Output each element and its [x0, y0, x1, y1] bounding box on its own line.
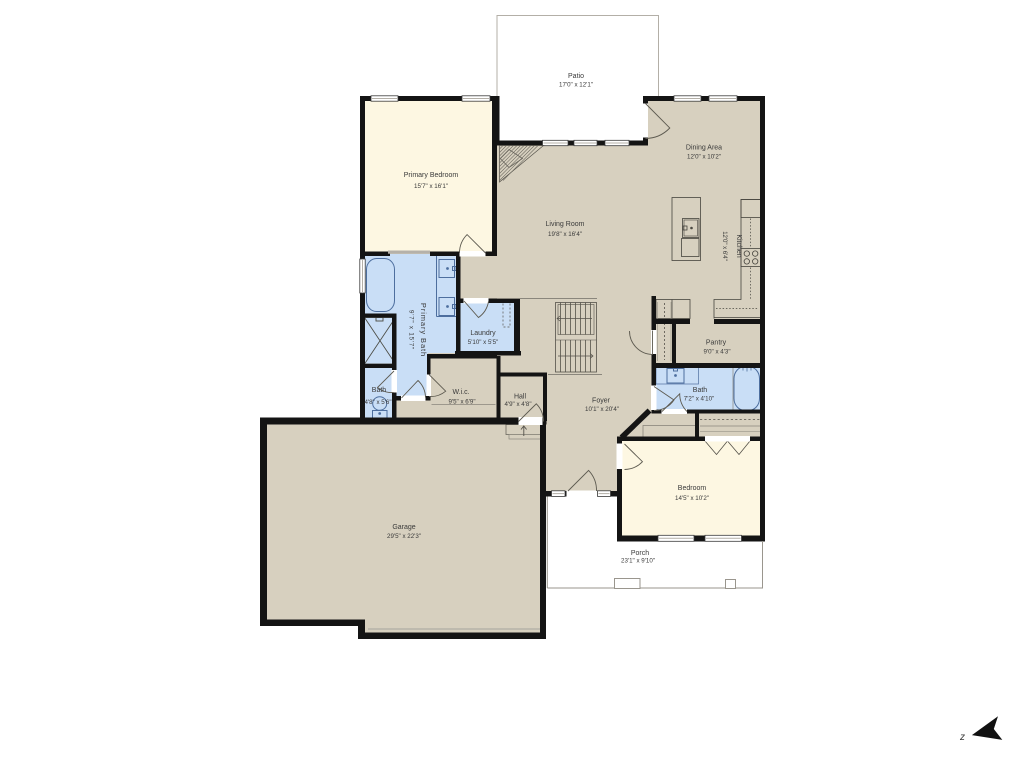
svg-text:19'8" x 16'4": 19'8" x 16'4"	[548, 231, 582, 238]
svg-text:14'5" x 10'2": 14'5" x 10'2"	[675, 495, 709, 502]
svg-text:Pantry: Pantry	[706, 340, 727, 347]
svg-text:17'0" x 12'1": 17'0" x 12'1"	[559, 82, 593, 89]
svg-text:Bath: Bath	[372, 387, 387, 394]
svg-text:23'1" x 9'10": 23'1" x 9'10"	[621, 558, 655, 565]
svg-text:7'2" x 4'10": 7'2" x 4'10"	[684, 396, 715, 403]
svg-text:15'7" x 16'1": 15'7" x 16'1"	[414, 183, 448, 190]
svg-text:Garage: Garage	[392, 524, 415, 531]
svg-text:29'5" x 22'3": 29'5" x 22'3"	[387, 533, 421, 540]
svg-text:Foyer: Foyer	[592, 398, 611, 405]
svg-text:W.i.c.: W.i.c.	[452, 389, 469, 396]
svg-text:Kitchen: Kitchen	[735, 234, 742, 257]
svg-text:4'9" x 4'8": 4'9" x 4'8"	[504, 401, 531, 408]
svg-text:12'0" x 10'2": 12'0" x 10'2"	[687, 154, 721, 161]
svg-text:z: z	[959, 732, 965, 743]
svg-text:Primary Bedroom: Primary Bedroom	[404, 172, 459, 179]
svg-text:Living Room: Living Room	[546, 221, 585, 228]
svg-text:Hall: Hall	[514, 394, 527, 401]
svg-text:Laundry: Laundry	[470, 330, 496, 337]
svg-text:9'0" x 4'3": 9'0" x 4'3"	[703, 349, 730, 356]
svg-text:9'5" x 6'9": 9'5" x 6'9"	[448, 399, 475, 406]
svg-text:10'1" x 20'4": 10'1" x 20'4"	[585, 406, 619, 413]
svg-text:Bedroom: Bedroom	[678, 485, 707, 492]
svg-text:9'7" x 15'7": 9'7" x 15'7"	[408, 310, 415, 350]
svg-text:4'8" x 5'6": 4'8" x 5'6"	[364, 399, 391, 406]
svg-text:12'0" x 6'4": 12'0" x 6'4"	[721, 231, 727, 261]
svg-text:Primary Bath: Primary Bath	[419, 303, 428, 357]
svg-text:Bath: Bath	[693, 387, 708, 394]
svg-text:5'10" x 5'5": 5'10" x 5'5"	[468, 339, 499, 346]
svg-text:Patio: Patio	[568, 73, 584, 80]
svg-text:Porch: Porch	[631, 550, 649, 557]
svg-text:Dining Area: Dining Area	[686, 145, 722, 152]
